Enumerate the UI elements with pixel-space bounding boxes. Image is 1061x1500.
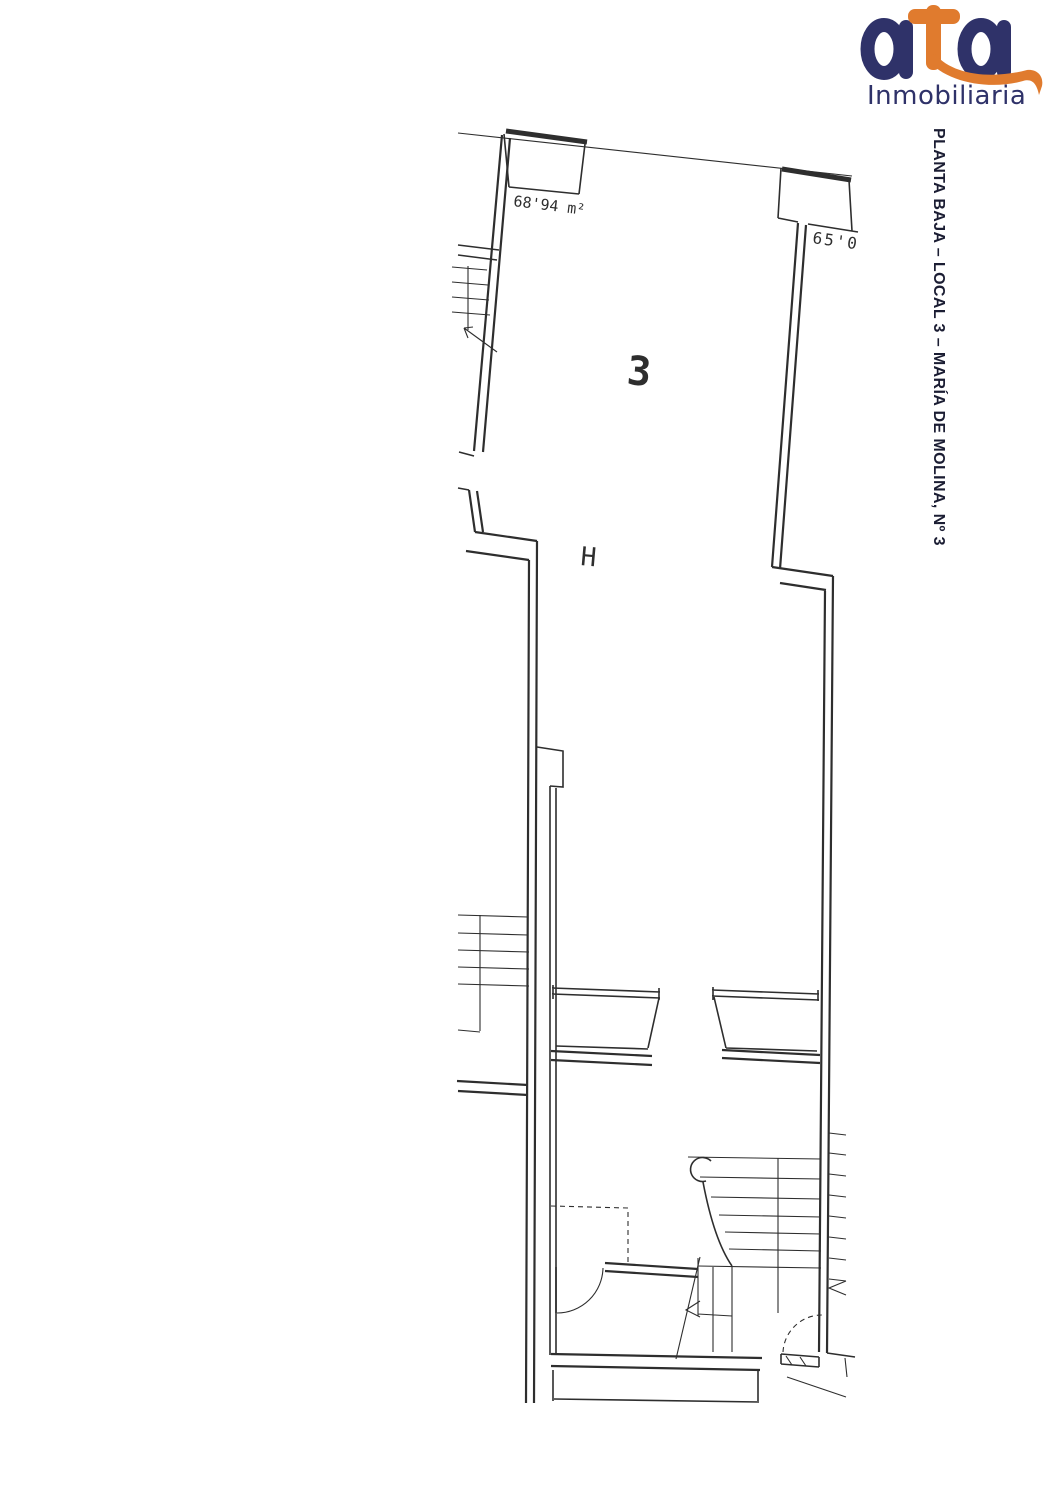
unit-number-label: 3 bbox=[625, 348, 653, 396]
display-opening-left bbox=[552, 985, 660, 1049]
interior-door bbox=[556, 1263, 698, 1313]
facade-pier-right bbox=[778, 168, 858, 232]
stair-direction-line bbox=[676, 1257, 700, 1359]
area-label-left: 68'94 m² bbox=[513, 192, 587, 219]
floor-plan: 68'94 m² 65'0 3 H bbox=[452, 131, 860, 1403]
display-opening-right bbox=[712, 987, 819, 1051]
neighbour-outline-below bbox=[553, 1370, 759, 1402]
curved-staircase bbox=[676, 1157, 821, 1359]
stairs-right-arrow bbox=[829, 1281, 846, 1295]
floor-plan-canvas: ata Inmobiliaria PLANTA BAJA – LOCAL 3 –… bbox=[0, 0, 1061, 1500]
right-wall bbox=[772, 223, 833, 1353]
scanned-floor-plan-page: ata Inmobiliaria PLANTA BAJA – LOCAL 3 –… bbox=[0, 0, 1061, 1500]
rear-door bbox=[781, 1315, 822, 1367]
door-swing-arc bbox=[557, 1268, 603, 1313]
company-logo: ata Inmobiliaria bbox=[862, 4, 1042, 111]
left-stub-wall bbox=[457, 1081, 528, 1095]
bottom-wall bbox=[551, 1354, 762, 1370]
page-title: PLANTA BAJA – LOCAL 3 – MARÍA DE MOLINA,… bbox=[930, 128, 949, 546]
stair-newel-hook bbox=[691, 1158, 711, 1182]
dashed-partition bbox=[551, 1206, 628, 1266]
stairs-right-exterior bbox=[829, 1133, 846, 1295]
column-symbol-label: H bbox=[579, 542, 597, 573]
stairs-mid-left bbox=[458, 915, 529, 1032]
rear-door-swing-dashed bbox=[783, 1315, 822, 1352]
bottom-right-walls bbox=[787, 1353, 855, 1397]
facade-pier-left bbox=[504, 131, 587, 194]
left-wall-jog bbox=[466, 532, 537, 560]
rear-wall-right bbox=[722, 1050, 820, 1063]
logo-subtitle: Inmobiliaria bbox=[867, 81, 1026, 111]
left-wall-lower bbox=[526, 541, 537, 1403]
lower-flight bbox=[698, 1258, 732, 1352]
stair-sweep-curve bbox=[703, 1182, 732, 1266]
rear-wall-left bbox=[551, 1051, 652, 1065]
